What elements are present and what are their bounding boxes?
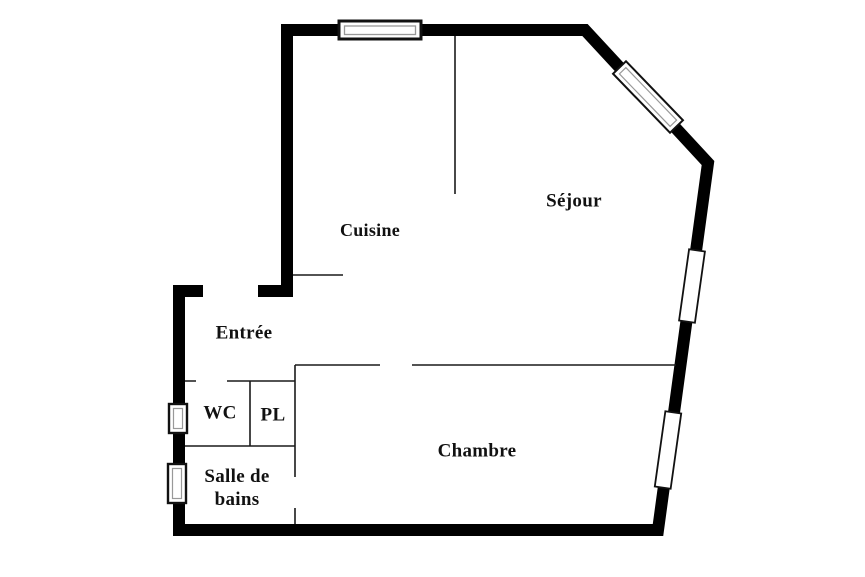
room-label-cuisine: Cuisine <box>340 220 400 242</box>
floor-plan: Cuisine Séjour Entrée WC PL Salle de bai… <box>0 0 865 577</box>
floor-plan-drawing <box>0 0 865 577</box>
window-right-upper <box>679 249 705 323</box>
room-label-entree: Entrée <box>216 323 273 346</box>
window-top <box>339 21 421 39</box>
room-label-sejour: Séjour <box>546 191 602 214</box>
room-label-pl: PL <box>261 405 286 428</box>
room-label-wc: WC <box>203 403 236 426</box>
window-right-lower <box>655 411 681 488</box>
room-label-chambre: Chambre <box>438 441 517 464</box>
window-left-upper <box>169 404 187 433</box>
room-label-salle-de-bains: Salle de bains <box>187 466 287 512</box>
window-diagonal <box>613 61 683 132</box>
window-left-lower <box>168 464 186 503</box>
